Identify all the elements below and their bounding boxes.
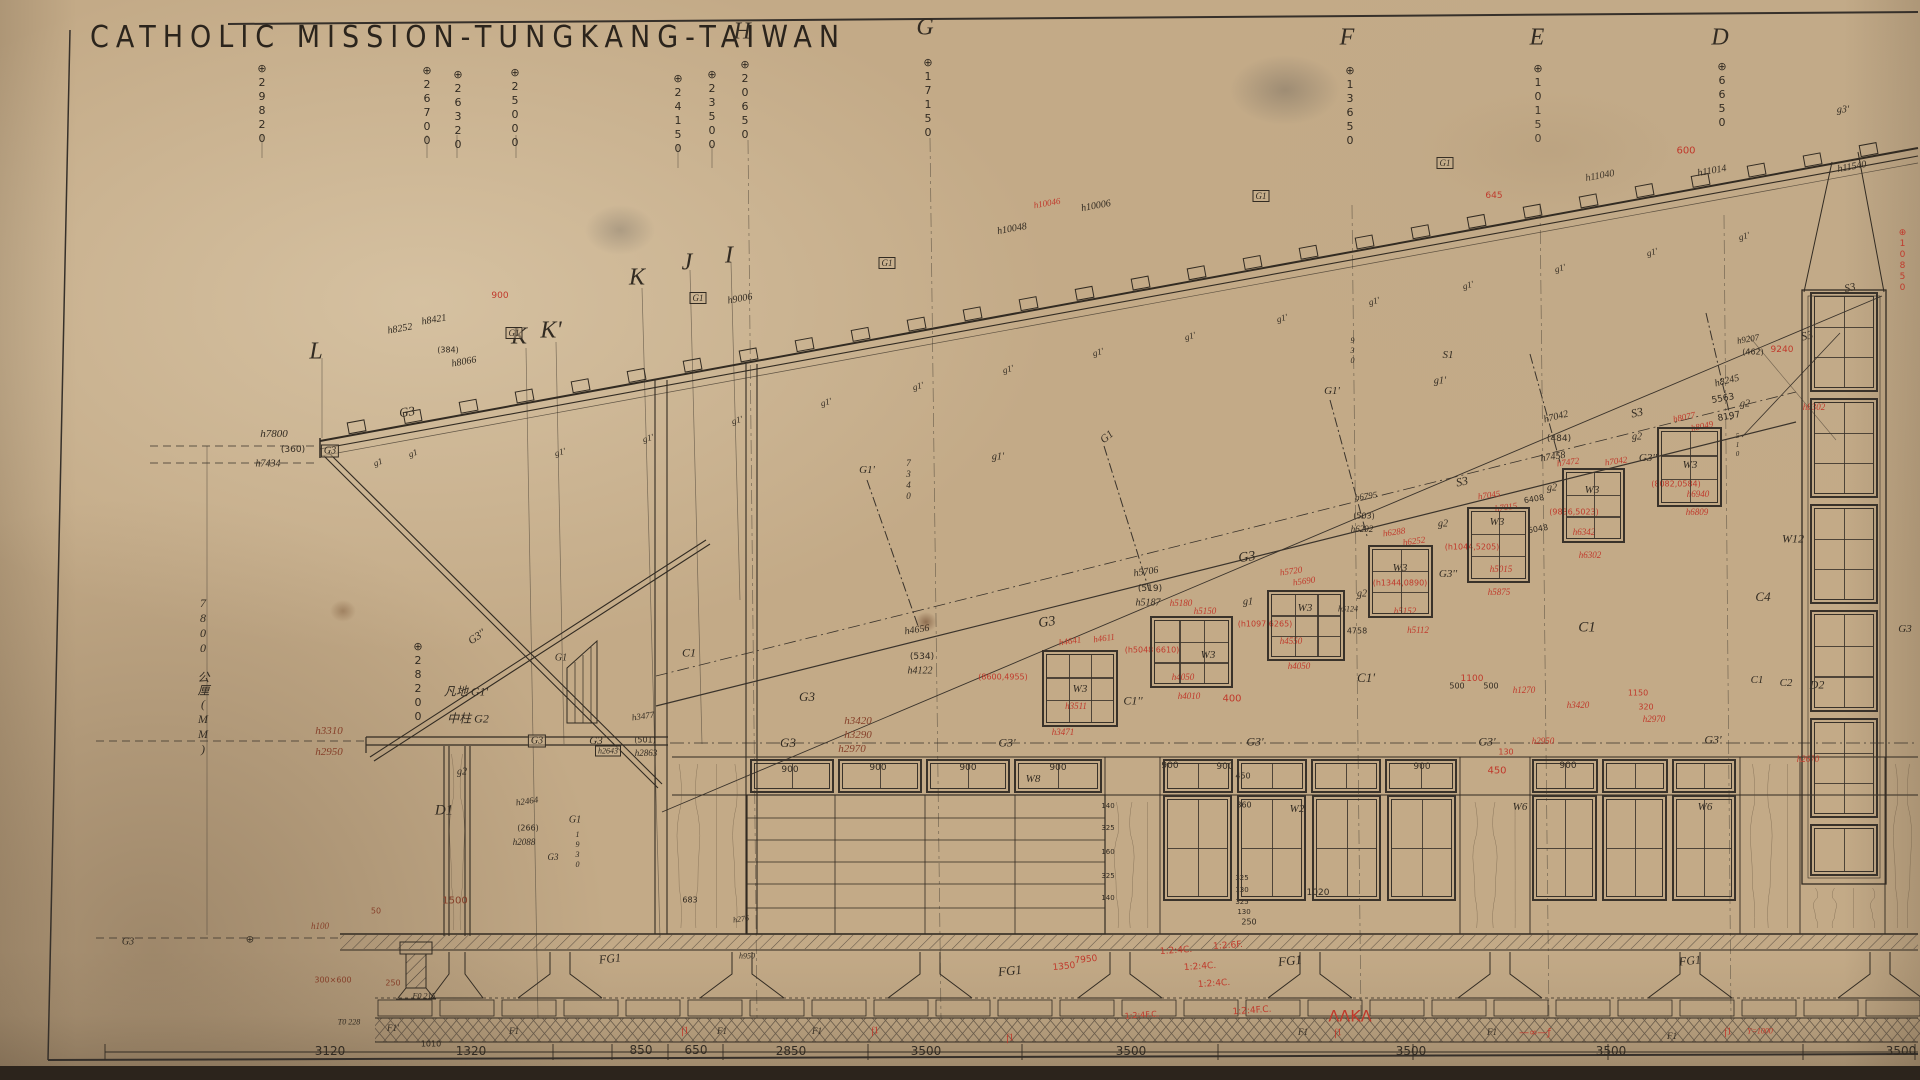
- grid-letter: K': [540, 318, 561, 345]
- annotation-label: G3: [780, 735, 796, 751]
- window-mullion: [1844, 509, 1845, 599]
- window-frame: [1814, 508, 1874, 600]
- annotation-label: G3: [799, 689, 815, 705]
- window-frame: [1814, 722, 1874, 814]
- annotation-label: 7340: [904, 458, 913, 502]
- grid-letter: E: [1530, 25, 1545, 52]
- annotation-label: h950: [739, 952, 755, 961]
- elevation-mark: ⊕17150: [923, 56, 934, 140]
- annotation-label: C1'': [1123, 694, 1142, 709]
- blueprint-sheet: CATHOLIC MISSION-TUNGKANG-TAIWAN HGFEDIJ…: [0, 0, 1920, 1080]
- grid-letter: I: [725, 243, 733, 270]
- window-frame: [1316, 799, 1377, 897]
- window-muntin: [1472, 534, 1525, 535]
- window-frame: [1315, 763, 1377, 789]
- window: [1810, 824, 1878, 876]
- annotation-label: h4122: [908, 666, 933, 677]
- annotation-label: W12: [1782, 532, 1804, 547]
- window-mullion: [1069, 655, 1070, 722]
- annotation-label: 650: [685, 1043, 708, 1057]
- annotation-label: 645: [1485, 191, 1502, 201]
- window: [1810, 292, 1878, 392]
- window-muntin: [1815, 646, 1873, 647]
- annotation-label: h7434: [256, 459, 281, 470]
- elevation-mark: ⊕26320: [453, 68, 464, 152]
- window-frame: [1814, 614, 1874, 708]
- window-muntin: [1242, 848, 1301, 849]
- window-frame: [1814, 296, 1874, 388]
- annotation-label: h6809: [1686, 507, 1709, 517]
- window: [1672, 759, 1736, 793]
- annotation-label: h4050: [1288, 661, 1311, 671]
- annotation-label: G3: [1037, 614, 1056, 632]
- annotation-label: 325: [1101, 872, 1114, 880]
- annotation-label: 450: [1487, 766, 1506, 777]
- annotation-label: 130: [1237, 908, 1250, 916]
- annotation-label: h5187: [1136, 598, 1161, 609]
- grid-letter: F: [1340, 25, 1355, 52]
- elevation-mark: ⊕24150: [673, 72, 684, 156]
- window-frame: [1676, 763, 1732, 789]
- elevation-mark: ⊕10150: [1533, 62, 1544, 146]
- annotation-label: F1: [1298, 1027, 1308, 1037]
- annotation-label: FG1: [1277, 952, 1302, 970]
- annotation-label: g2: [1438, 519, 1448, 530]
- elevation-mark: ⊕29820: [257, 62, 268, 146]
- annotation-label: 3500: [1116, 1044, 1147, 1058]
- annotation-label: 凡地 G1': [444, 683, 488, 700]
- window-mullion: [1198, 764, 1199, 788]
- window-mullion: [1844, 723, 1845, 813]
- window: [1672, 795, 1736, 901]
- annotation-label: 1930: [573, 830, 581, 870]
- annotation-label: G3'': [1639, 452, 1657, 464]
- annotation-label: h6302: [1579, 550, 1602, 560]
- annotation-label: 1150: [1628, 689, 1648, 698]
- window-frame: [1167, 763, 1229, 789]
- window: [1562, 468, 1625, 543]
- elevation-mark: ⊕6650: [1717, 60, 1728, 130]
- window: [1467, 507, 1530, 583]
- annotation-label: C1: [682, 646, 696, 661]
- window: [1810, 610, 1878, 712]
- window-frame: [1241, 763, 1303, 789]
- annotation-label: (501): [634, 736, 656, 745]
- annotation-label: G3': [1246, 735, 1263, 750]
- window-frame: [1046, 654, 1114, 723]
- annotation-label: S1: [1443, 349, 1454, 361]
- annotation-label: 1010: [421, 1040, 441, 1049]
- grid-letter: K: [629, 265, 645, 292]
- annotation-label: h1270: [1513, 685, 1536, 695]
- annotation-label: (384): [437, 346, 459, 355]
- elevation-mark: ⊕26700: [422, 64, 433, 148]
- annotation-label: G3: [548, 852, 559, 862]
- annotation-label: F1: [1667, 1031, 1677, 1041]
- grid-letter: H: [733, 19, 750, 46]
- window: [1810, 504, 1878, 604]
- window-frame: [1018, 763, 1098, 789]
- annotation-label: C1': [1357, 670, 1375, 686]
- window: [1387, 795, 1456, 901]
- annotation-label: 510: [1734, 432, 1741, 459]
- annotation-label: 50: [371, 907, 381, 916]
- window: [1014, 759, 1102, 793]
- annotation-label: g2: [1632, 432, 1642, 443]
- window-frame: [1167, 799, 1228, 897]
- window-frame: [1536, 763, 1594, 789]
- annotation-label: 1:2:6F.: [1213, 940, 1243, 952]
- window-frame: [1271, 594, 1341, 657]
- window-mullion: [1204, 621, 1205, 683]
- window-muntin: [1047, 677, 1113, 678]
- window-mullion: [1635, 764, 1636, 788]
- annotation-label: g2: [1740, 399, 1750, 410]
- annotation-label: G3': [998, 736, 1015, 751]
- annotation-label: G3: [122, 937, 134, 948]
- window-mullion: [1317, 595, 1318, 656]
- window-muntin: [1662, 479, 1717, 480]
- window-muntin: [1815, 569, 1873, 570]
- annotation-label: h5875: [1488, 587, 1511, 597]
- window: [1368, 545, 1433, 618]
- annotation-label: FG1: [598, 950, 621, 967]
- window-muntin: [1815, 463, 1873, 464]
- annotation-label: g2: [1357, 589, 1367, 600]
- annotation-label: 4758: [1347, 627, 1367, 636]
- window-mullion: [1401, 550, 1402, 613]
- annotation-label: 3120: [315, 1044, 346, 1058]
- annotation-label: h3471: [1052, 727, 1075, 737]
- annotation-label: F1': [387, 1023, 399, 1033]
- window-mullion: [968, 764, 969, 788]
- window-mullion: [1346, 764, 1347, 788]
- annotation-label: 930: [1348, 336, 1356, 366]
- annotation-label: G1: [506, 327, 523, 339]
- window-frame: [1372, 549, 1429, 614]
- window-muntin: [1607, 848, 1662, 849]
- window: [1602, 795, 1667, 901]
- annotation-label: F1: [812, 1026, 822, 1036]
- window-mullion: [1844, 403, 1845, 493]
- annotation-label: 130: [1498, 748, 1513, 757]
- annotation-label: 250: [1241, 918, 1256, 927]
- window-mullion: [1272, 764, 1273, 788]
- window-muntin: [1373, 571, 1428, 572]
- annotation-label: 600: [1676, 146, 1695, 157]
- annotation-label: h2950: [315, 746, 343, 758]
- annotation-label: g3': [1837, 105, 1849, 116]
- annotation-label: h5112: [1407, 625, 1429, 635]
- window-frame: [1241, 799, 1302, 897]
- window: [1657, 427, 1722, 507]
- window-frame: [1471, 511, 1526, 579]
- annotation-label: 140: [1101, 802, 1114, 810]
- sheet-frame: [48, 12, 1918, 1060]
- window: [1237, 759, 1307, 793]
- elevation-mark: ⊕25000: [510, 66, 521, 150]
- annotation-label: (266): [517, 824, 539, 833]
- window-frame: [1391, 799, 1452, 897]
- window-muntin: [1272, 615, 1340, 616]
- window-muntin: [1317, 848, 1376, 849]
- window: [1042, 650, 1118, 727]
- annotation-label: h5150: [1194, 606, 1217, 616]
- window-mullion: [1421, 764, 1422, 788]
- annotation-label: 500: [1449, 682, 1464, 691]
- window-muntin: [1815, 676, 1873, 677]
- elevation-mark: ⊕28200: [413, 640, 424, 724]
- window-muntin: [1815, 327, 1873, 328]
- annotation-label: FG1: [997, 962, 1022, 980]
- annotation-label: 325: [1101, 824, 1114, 832]
- window-muntin: [1567, 495, 1620, 496]
- window-mullion: [1690, 432, 1691, 502]
- window-frame: [1154, 620, 1229, 684]
- window: [838, 759, 922, 793]
- annotation-label: 850: [630, 1043, 653, 1057]
- drawing-linework: [0, 0, 1920, 1080]
- annotation-label: F1: [1487, 1027, 1497, 1037]
- annotation-label: (360): [281, 445, 305, 455]
- window-mullion: [1704, 764, 1705, 788]
- annotation-label: 3500: [911, 1044, 942, 1058]
- annotation-label: C2: [1780, 677, 1793, 689]
- window-muntin: [1815, 783, 1873, 784]
- annotation-label: f1: [1005, 1032, 1015, 1044]
- window-mullion: [1499, 512, 1500, 578]
- annotation-label: (8600,4955): [978, 673, 1028, 682]
- elevation-mark: ⊕20650: [740, 58, 751, 142]
- annotation-label: h2970: [838, 743, 866, 755]
- annotation-label: G3': [1704, 733, 1721, 748]
- annotation-label: G1: [690, 292, 707, 304]
- annotation-label: 400: [1222, 694, 1241, 705]
- annotation-label: C4: [1755, 589, 1770, 605]
- annotation-label: D1: [435, 803, 453, 820]
- annotation-label: G1': [859, 464, 875, 476]
- annotation-label: (503): [1353, 512, 1375, 521]
- annotation-label: 9240: [1771, 345, 1794, 355]
- annotation-label: (519): [1138, 584, 1162, 594]
- window-muntin: [1662, 455, 1717, 456]
- annotation-label: G1: [1437, 157, 1454, 169]
- window: [1163, 759, 1233, 793]
- window-muntin: [1815, 539, 1873, 540]
- window-mullion: [880, 764, 881, 788]
- window-muntin: [1272, 636, 1340, 637]
- annotation-label: h2970: [1643, 714, 1666, 724]
- window-muntin: [1815, 433, 1873, 434]
- annotation-label: G1: [569, 815, 581, 826]
- annotation-label: h6292: [1351, 524, 1374, 534]
- window-mullion: [1565, 764, 1566, 788]
- window-frame: [1566, 472, 1621, 539]
- annotation-label: h3290: [844, 729, 872, 741]
- window: [1810, 718, 1878, 818]
- annotation-label: 140: [1101, 894, 1114, 902]
- annotation-label: h2088: [513, 837, 536, 847]
- window-mullion: [1844, 297, 1845, 387]
- annotation-label: —∞—ƒ: [1519, 1028, 1551, 1039]
- window-muntin: [1815, 753, 1873, 754]
- annotation-label: 1320: [456, 1044, 487, 1058]
- window: [1150, 616, 1233, 688]
- annotation-label: ⊕: [246, 935, 254, 946]
- annotation-label: G1: [555, 653, 567, 664]
- window-frame: [1814, 828, 1874, 872]
- annotation-label: h2643: [595, 746, 621, 757]
- annotation-label: 3500: [1396, 1044, 1427, 1058]
- annotation-label: h2863: [635, 748, 658, 758]
- grid-letter: G: [916, 15, 933, 42]
- annotation-label: f1: [1333, 1027, 1343, 1039]
- annotation-label: h100: [311, 921, 329, 931]
- grid-letter: L: [309, 339, 322, 366]
- annotation-label: g2: [1547, 483, 1557, 494]
- window-mullion: [792, 764, 793, 788]
- window: [1602, 759, 1668, 793]
- annotation-label: G3: [1898, 623, 1911, 635]
- window-muntin: [1373, 592, 1428, 593]
- annotation-label: T0 228: [338, 1018, 360, 1027]
- annotation-label: 3500: [1886, 1044, 1917, 1058]
- window-frame: [754, 763, 830, 789]
- annotation-label: G1: [1253, 190, 1270, 202]
- annotation-label: (534): [910, 652, 934, 662]
- annotation-label: 900: [491, 291, 508, 301]
- elevation-mark: ⊕13650: [1345, 64, 1356, 148]
- window-muntin: [1815, 357, 1873, 358]
- annotation-label: 320: [1638, 703, 1653, 712]
- annotation-label: G3: [589, 735, 602, 747]
- window-muntin: [1155, 642, 1228, 643]
- annotation-label: G3: [1237, 549, 1256, 567]
- annotation-label: g1': [1434, 376, 1446, 387]
- annotation-label: f1: [1723, 1026, 1733, 1038]
- annotation-label: G3: [528, 735, 546, 748]
- annotation-label: (484): [1547, 434, 1571, 444]
- annotation-label: 683: [682, 896, 697, 905]
- annotation-label: F1: [717, 1026, 727, 1036]
- annotation-label: 中柱 G2: [447, 710, 489, 727]
- annotation-label: FG1: [1678, 952, 1701, 969]
- annotation-label: g2: [457, 767, 467, 778]
- window: [1532, 759, 1598, 793]
- annotation-label: f1: [870, 1025, 880, 1037]
- annotation-label: F1: [509, 1026, 519, 1036]
- window-mullion: [1091, 655, 1092, 722]
- window-mullion: [1594, 473, 1595, 538]
- window: [1810, 398, 1878, 498]
- window-frame: [930, 763, 1006, 789]
- annotation-label: ΛΛKΛ: [1328, 1007, 1371, 1026]
- window-muntin: [1567, 516, 1620, 517]
- window-mullion: [1844, 615, 1845, 707]
- annotation-label: 1500: [442, 896, 467, 907]
- annotation-label: 160: [1101, 848, 1114, 856]
- annotation-label: G3'': [1439, 568, 1457, 580]
- window-muntin: [1047, 700, 1113, 701]
- window: [1237, 795, 1306, 901]
- annotation-label: 300×600: [314, 976, 351, 985]
- annotation-label: Y=1000: [1747, 1027, 1773, 1036]
- annotation-label: ⊕10850: [1898, 228, 1907, 294]
- annotation-label: h3310: [315, 725, 343, 737]
- annotation-label: h4010: [1178, 691, 1201, 701]
- annotation-label: 250: [385, 979, 400, 988]
- window-muntin: [1168, 848, 1227, 849]
- annotation-label: h2950: [1532, 736, 1555, 746]
- annotation-label: h5180: [1170, 598, 1193, 608]
- annotation-label: h7800: [260, 428, 288, 440]
- annotation-label: 500: [1483, 682, 1498, 691]
- window-frame: [1389, 763, 1453, 789]
- grid-letter: J: [682, 250, 693, 277]
- annotation-label: h3420: [1567, 700, 1590, 710]
- window-frame: [1661, 431, 1718, 503]
- annotation-label: W6: [1513, 801, 1528, 813]
- window-mullion: [1295, 595, 1296, 656]
- window-frame: [1606, 799, 1663, 897]
- annotation-label: 3500: [1596, 1044, 1627, 1058]
- window-muntin: [1472, 556, 1525, 557]
- annotation-label: h3420: [844, 715, 872, 727]
- window: [1532, 795, 1597, 901]
- window-mullion: [1844, 829, 1845, 871]
- window-frame: [842, 763, 918, 789]
- window-frame: [1536, 799, 1593, 897]
- window: [1311, 759, 1381, 793]
- window-mullion: [1179, 621, 1180, 683]
- window: [926, 759, 1010, 793]
- window: [750, 759, 834, 793]
- annotation-label: 2850: [776, 1044, 807, 1058]
- window: [1267, 590, 1345, 661]
- window-mullion: [1058, 764, 1059, 788]
- annotation-label: G1': [1324, 385, 1340, 397]
- annotation-label: g1: [1243, 597, 1253, 608]
- annotation-label: G3: [321, 445, 339, 458]
- window-muntin: [1155, 662, 1228, 663]
- window: [1163, 795, 1232, 901]
- annotation-label: F0 215: [413, 992, 436, 1001]
- annotation-label: C1: [1578, 620, 1596, 637]
- annotation-label: g1': [992, 452, 1004, 463]
- window: [1312, 795, 1381, 901]
- window-muntin: [1677, 848, 1731, 849]
- window: [1385, 759, 1457, 793]
- elevation-mark: ⊕23500: [707, 68, 718, 152]
- annotation-label: (462): [1742, 348, 1764, 357]
- window-frame: [1814, 402, 1874, 494]
- annotation-label: G3: [398, 403, 416, 421]
- height-note: 7800 公厘(MM): [197, 596, 209, 757]
- window-muntin: [1537, 848, 1592, 849]
- annotation-label: G3': [1478, 735, 1495, 750]
- annotation-label: C1: [1751, 674, 1764, 686]
- window-frame: [1676, 799, 1732, 897]
- window-muntin: [1392, 848, 1451, 849]
- annotation-label: f1: [680, 1025, 690, 1037]
- grid-letter: D: [1711, 25, 1728, 52]
- annotation-label: G1: [879, 257, 896, 269]
- window-frame: [1606, 763, 1664, 789]
- roof-structure: [320, 143, 1918, 458]
